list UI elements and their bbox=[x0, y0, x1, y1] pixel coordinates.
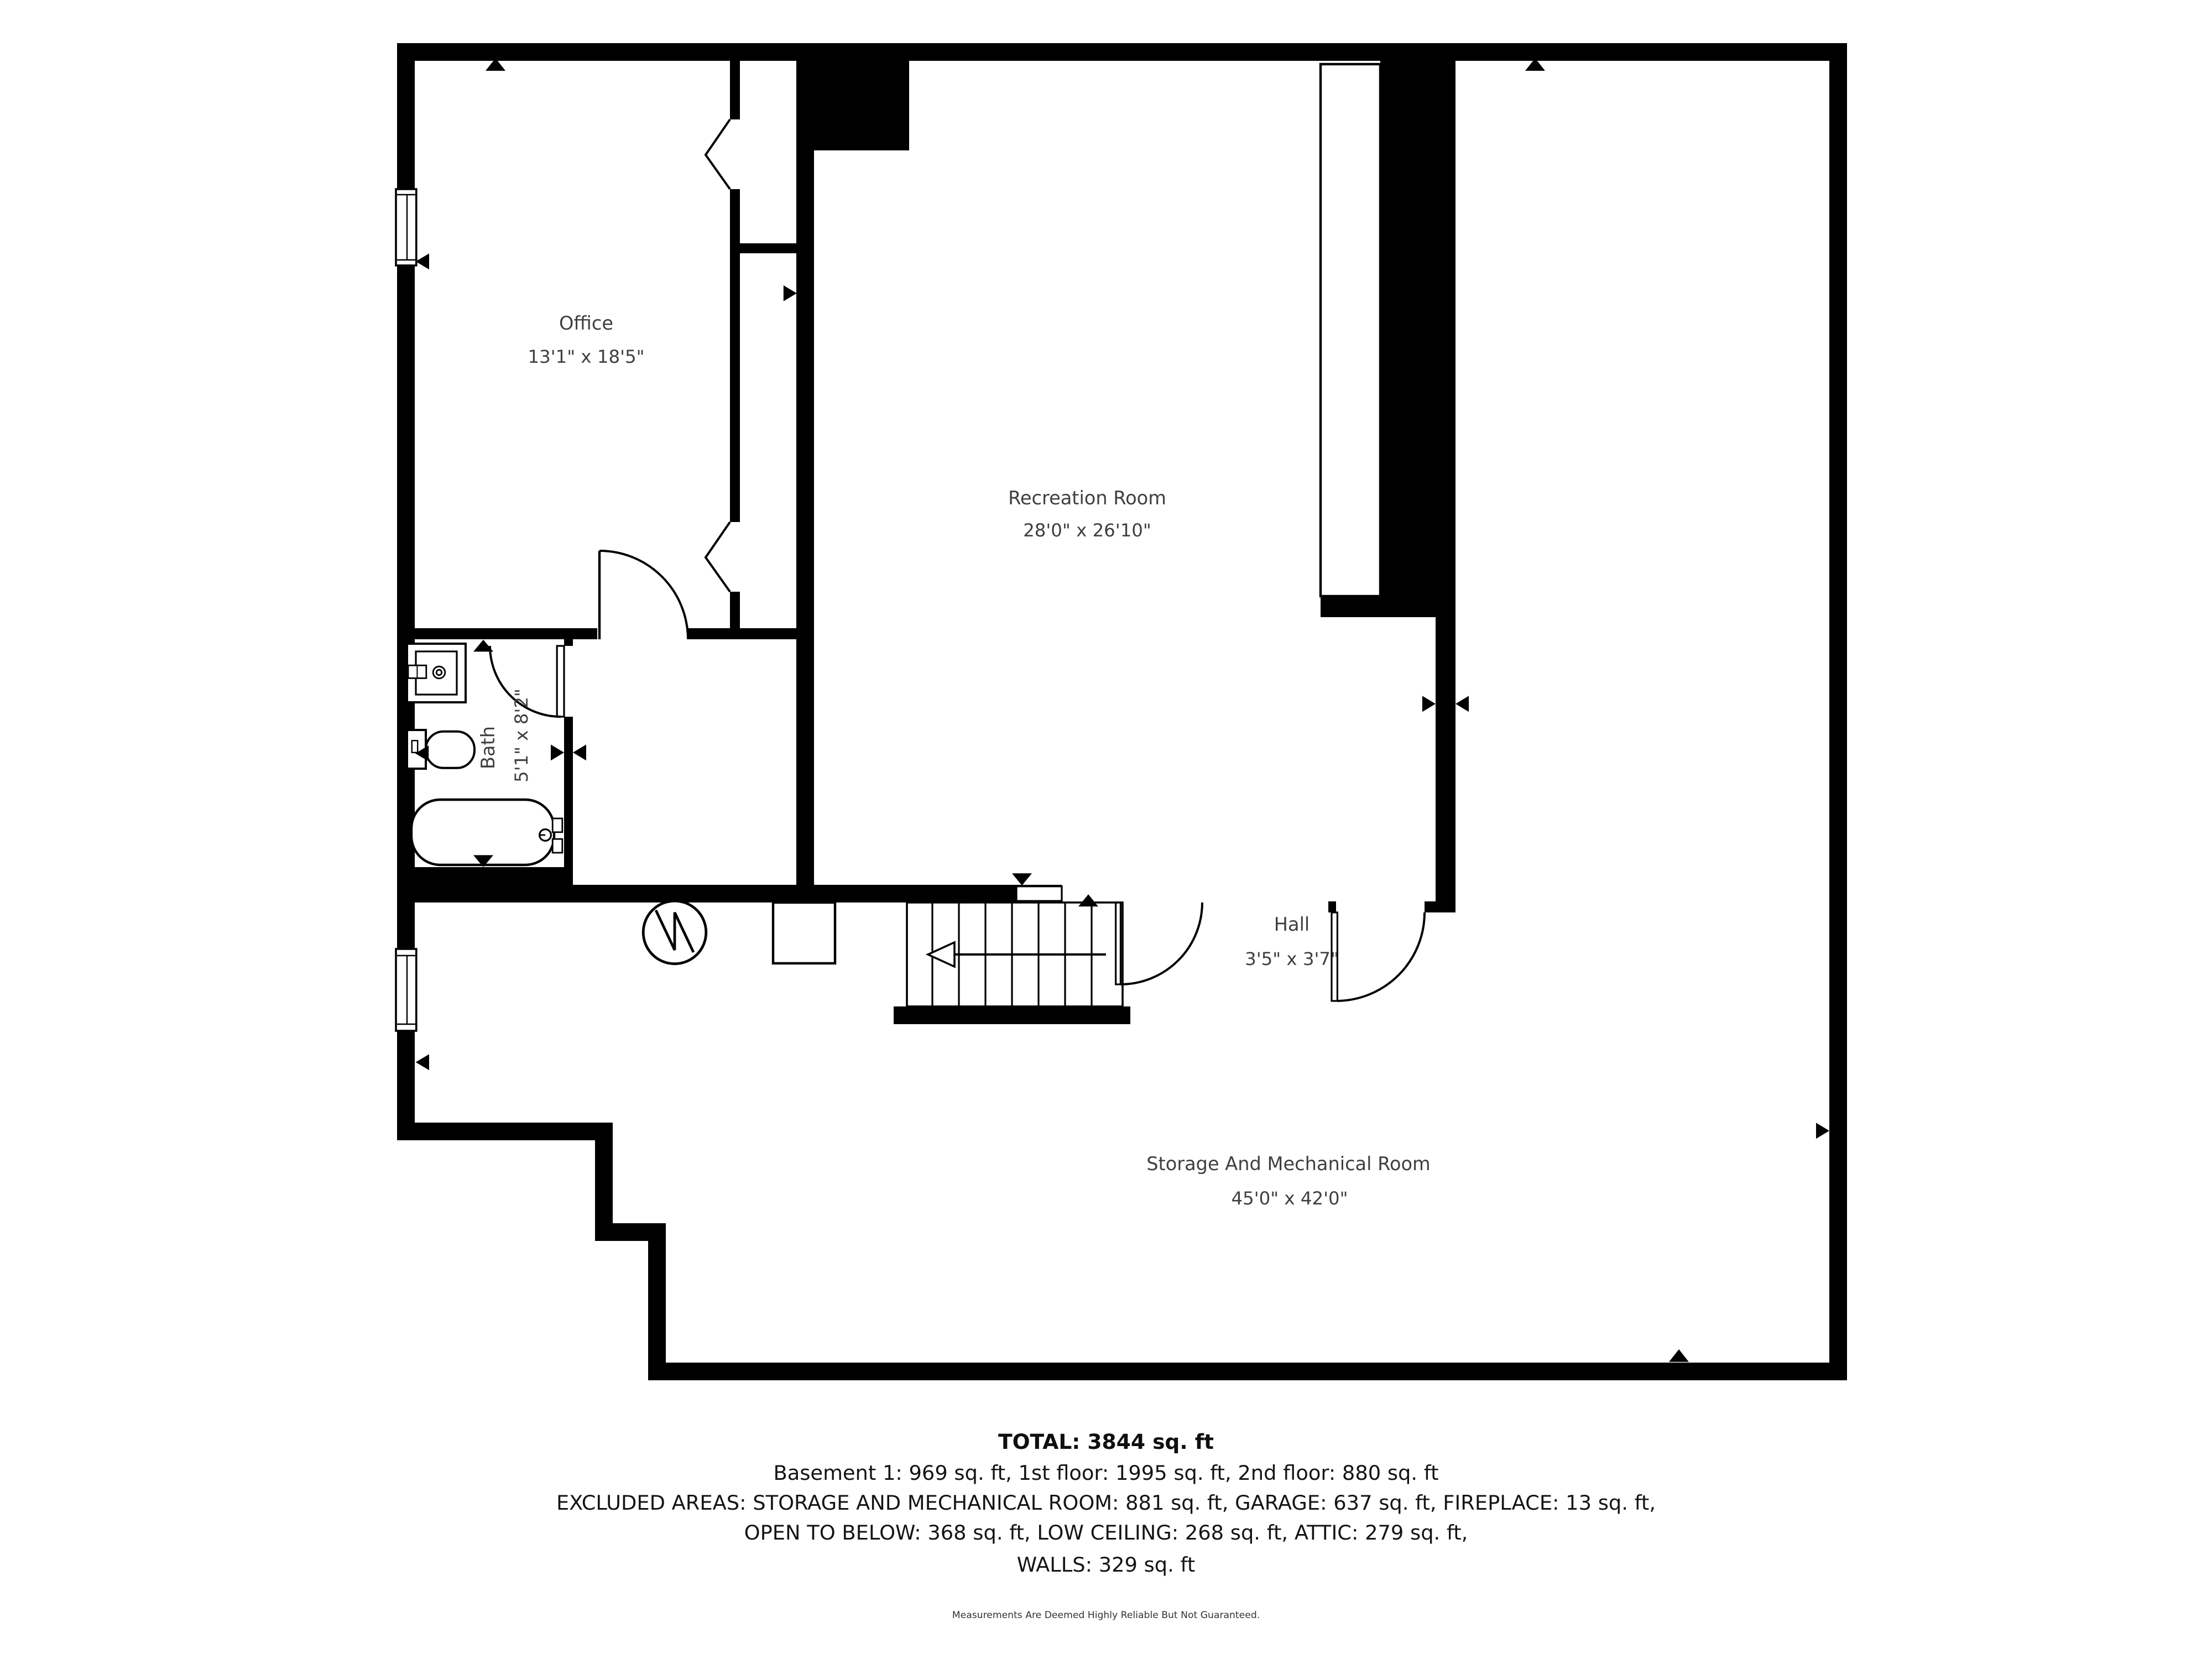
wall-right bbox=[1829, 43, 1847, 1380]
wall-bottom bbox=[648, 1363, 1847, 1380]
summary-excluded-1: EXCLUDED AREAS: STORAGE AND MECHANICAL R… bbox=[556, 1491, 1656, 1515]
toilet-icon bbox=[407, 730, 474, 769]
wall-step-h1 bbox=[397, 1123, 613, 1140]
wall-bath-bottom bbox=[397, 867, 573, 902]
wall-channel-connector bbox=[740, 243, 796, 253]
floor-plan: Office 13'1" x 18'5" Recreation Room 28'… bbox=[0, 0, 2212, 1659]
wall-office-right-seg1 bbox=[730, 61, 740, 119]
wall-hall-stub-left bbox=[1328, 901, 1336, 912]
wall-hall-right bbox=[1436, 617, 1455, 901]
disclaimer-text: Measurements Are Deemed Highly Reliable … bbox=[952, 1610, 1260, 1621]
bath-label: Bath bbox=[477, 726, 499, 769]
direction-markers bbox=[415, 58, 1829, 1362]
area-summary: TOTAL: 3844 sq. ft Basement 1: 969 sq. f… bbox=[556, 1430, 1656, 1621]
office-dims: 13'1" x 18'5" bbox=[528, 346, 644, 367]
wall-step-v1 bbox=[595, 1123, 613, 1241]
wall-rec-corner-block bbox=[796, 61, 909, 150]
door-office-icon bbox=[599, 551, 688, 639]
wall-office-bottom-b bbox=[688, 628, 796, 639]
wall-office-bottom-a bbox=[415, 628, 597, 639]
window-icon-storage bbox=[396, 949, 416, 1031]
marker-down-icon bbox=[1012, 873, 1032, 885]
folding-door-lower-icon bbox=[706, 522, 730, 592]
storage-dims: 45'0" x 42'0" bbox=[1231, 1188, 1348, 1209]
office-label: Office bbox=[559, 312, 613, 334]
room-labels: Office 13'1" x 18'5" Recreation Room 28'… bbox=[477, 312, 1431, 1209]
fireplace-niche-bar bbox=[1380, 61, 1455, 596]
door-stairs-icon bbox=[1116, 902, 1202, 984]
water-heater-icon bbox=[773, 902, 835, 963]
hall-dims: 3'5" x 3'7" bbox=[1245, 948, 1339, 969]
fireplace-niche-inner bbox=[1321, 64, 1380, 596]
sink-icon bbox=[407, 644, 466, 702]
summary-floors: Basement 1: 969 sq. ft, 1st floor: 1995 … bbox=[773, 1461, 1438, 1485]
stair-direction-arrow bbox=[928, 942, 1106, 967]
wall-rec-bottom bbox=[564, 885, 1062, 902]
bath-dims: 5'1" x 8'2" bbox=[511, 688, 532, 782]
marker-up-icon bbox=[1669, 1349, 1689, 1362]
summary-excluded-2: OPEN TO BELOW: 368 sq. ft, LOW CEILING: … bbox=[744, 1521, 1468, 1545]
stairs bbox=[907, 902, 1123, 1006]
walls bbox=[397, 43, 1847, 1380]
summary-excluded-3: WALLS: 329 sq. ft bbox=[1017, 1553, 1196, 1577]
doors bbox=[490, 119, 1425, 1001]
wall-office-right-seg2 bbox=[730, 189, 740, 522]
hall-label: Hall bbox=[1274, 914, 1310, 935]
mechanical-symbols bbox=[643, 901, 835, 964]
wall-bath-right-a bbox=[564, 639, 573, 646]
bathtub-icon bbox=[411, 800, 562, 865]
marker-left-icon bbox=[416, 1054, 429, 1070]
wall-rec-left bbox=[796, 61, 814, 902]
marker-up-icon bbox=[473, 640, 493, 652]
marker-right-icon bbox=[784, 285, 797, 301]
marker-left-icon bbox=[416, 253, 429, 269]
folding-door-upper-icon bbox=[706, 119, 730, 189]
summary-total: TOTAL: 3844 sq. ft bbox=[998, 1430, 1214, 1454]
marker-up-icon bbox=[1078, 894, 1098, 906]
furnace-icon bbox=[643, 901, 706, 964]
marker-right-icon bbox=[1422, 696, 1436, 712]
recreation-dims: 28'0" x 26'10" bbox=[1023, 520, 1151, 541]
wall-stairs-bottom bbox=[894, 1006, 1130, 1024]
marker-right-icon bbox=[551, 744, 564, 760]
marker-left-icon bbox=[1455, 696, 1469, 712]
wall-bath-right-b bbox=[564, 717, 573, 885]
recreation-label: Recreation Room bbox=[1008, 487, 1166, 509]
wall-top bbox=[397, 43, 1847, 61]
storage-label: Storage And Mechanical Room bbox=[1146, 1153, 1431, 1175]
wall-hall-stub-right bbox=[1425, 901, 1455, 912]
door-hall-icon bbox=[1332, 912, 1425, 1001]
fireplace-niche-cap bbox=[1321, 596, 1455, 617]
marker-right-icon bbox=[1816, 1123, 1829, 1139]
window-icon-office bbox=[396, 189, 416, 265]
marker-left-icon bbox=[573, 744, 586, 760]
wall-step-v2 bbox=[648, 1223, 666, 1380]
stair-landing-notch bbox=[1016, 886, 1062, 901]
